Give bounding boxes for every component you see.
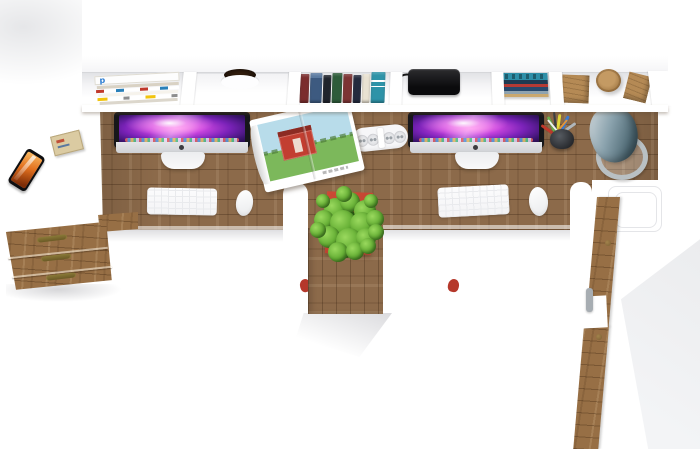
cabinet-knob-upper (605, 240, 611, 246)
hutch-end-wall (648, 71, 672, 106)
imac-left-stand (161, 152, 205, 169)
plant-leaf-16 (336, 186, 352, 202)
book-spine-7 (361, 74, 370, 103)
cabinet-gray-handle (586, 288, 593, 312)
plant-leaf-18 (364, 194, 378, 208)
book-spine-5 (342, 74, 352, 103)
hutch-divider-2 (287, 72, 301, 105)
cabinet-door-gap (580, 295, 608, 328)
potted-plant (306, 186, 388, 264)
shelf-drawer-pull-lip (221, 75, 259, 89)
wood-block-cylinder (596, 69, 621, 92)
desk-lamp (588, 106, 648, 174)
pedestal-shadow (296, 313, 392, 357)
desk-shadow-left (100, 230, 283, 242)
wood-block-cube (562, 75, 590, 104)
book-spine-4 (331, 73, 342, 103)
flat-book-stack-pattern (498, 74, 546, 79)
cabinet-shadow (615, 235, 700, 449)
imac-right (408, 112, 544, 172)
imac-left (114, 112, 250, 172)
hutch-divider-3 (389, 72, 402, 105)
plant-leaf-15 (360, 238, 376, 254)
pencil-cup-body (550, 129, 574, 149)
red-chair-fragment-right (447, 278, 460, 293)
magazine-stack: p (94, 72, 180, 106)
book-spine-6 (353, 75, 362, 103)
plant-leaf-11 (310, 222, 326, 238)
matchbox-mark-blue (58, 143, 70, 148)
hutch-front-edge (82, 105, 668, 112)
plant-leaf-13 (328, 242, 348, 262)
plant-leaf-17 (316, 194, 330, 208)
hutch-divider-4 (491, 72, 504, 105)
hutch-divider-5 (549, 72, 564, 105)
desk-shadow-right (383, 229, 570, 241)
book-spine-1 (299, 74, 309, 103)
workstation-render: p (0, 0, 700, 449)
imac-right-apple-logo-icon (473, 145, 478, 150)
imac-left-apple-logo-icon (179, 145, 184, 150)
imac-right-stand (455, 152, 499, 169)
hutch-top-face (82, 0, 668, 72)
cabinet-top-panel-inner (615, 192, 657, 228)
keyboard-left (147, 187, 217, 215)
book-spine-8 (370, 72, 385, 103)
keyboard-right (437, 184, 509, 218)
desk-slot-right (570, 182, 592, 232)
desk-front-edge-right (383, 225, 570, 229)
matchbox-mark-red (56, 139, 64, 144)
cabinet-knob-lower (596, 334, 602, 340)
book-spine-2 (309, 73, 322, 103)
book-spine-3 (323, 75, 332, 103)
cabinet-door-lower (573, 326, 609, 449)
pencil-cup (543, 112, 581, 150)
